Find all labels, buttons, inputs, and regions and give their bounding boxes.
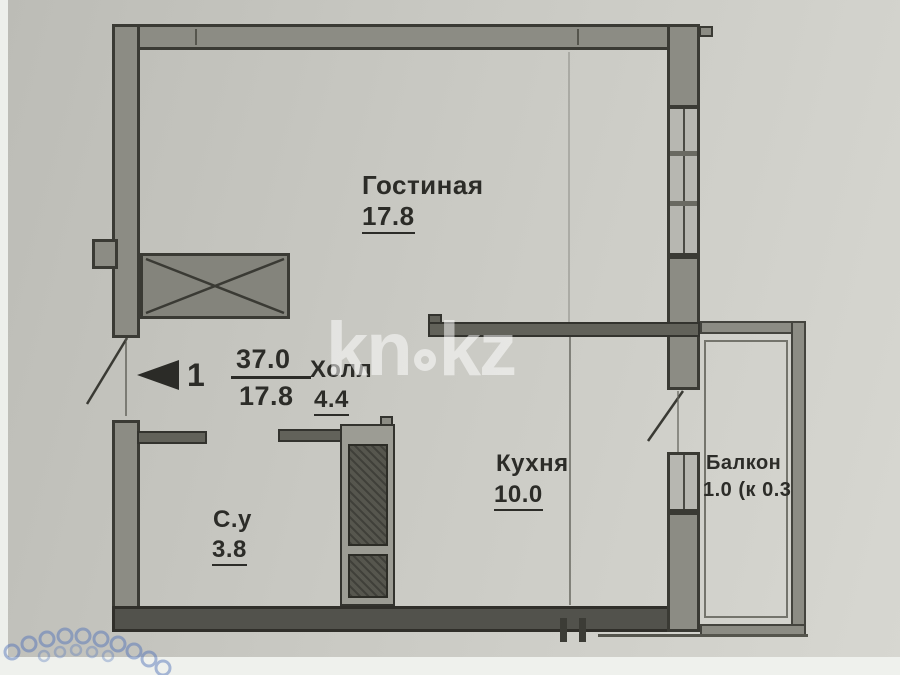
room-label-kitchen: Кухня	[496, 450, 569, 478]
room-area-bathroom: 3.8	[212, 536, 247, 564]
watermark-dot-icon	[414, 349, 436, 371]
watermark-kz: kz	[439, 307, 515, 392]
apartment-number: 1	[187, 357, 205, 394]
room-area-living: 17.8	[362, 201, 415, 232]
area-fraction-line	[231, 376, 311, 379]
room-area-bathroom-value: 3.8	[212, 536, 247, 566]
room-area-kitchen: 10.0	[494, 481, 543, 509]
apartment-marker-icon	[137, 360, 179, 390]
room-area-balcony: 1.0 (к 0.3	[703, 479, 791, 502]
ink-stamp	[0, 612, 200, 675]
living-area-value: 17.8	[239, 381, 294, 412]
room-label-living: Гостиная	[362, 170, 484, 201]
room-area-kitchen-value: 10.0	[494, 481, 543, 511]
floorplan-photo: 1 37.0 17.8 Гостиная 17.8 Холл 4.4 Кухня…	[0, 0, 900, 675]
room-label-balcony: Балкон	[706, 452, 781, 475]
watermark-kn: kn	[326, 307, 411, 392]
total-area-value: 37.0	[236, 344, 291, 375]
watermark: knkz	[326, 306, 515, 393]
room-label-bathroom: С.у	[213, 506, 252, 534]
room-area-living-value: 17.8	[362, 201, 415, 234]
